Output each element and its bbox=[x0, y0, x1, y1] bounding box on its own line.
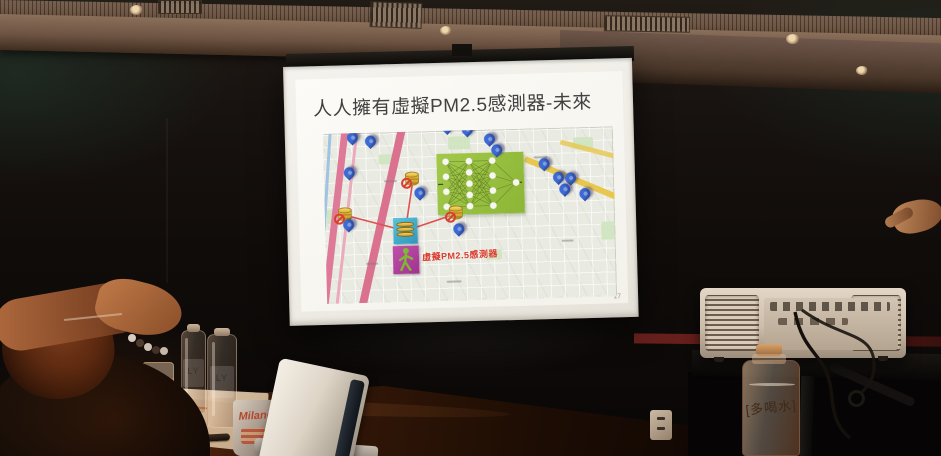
projection-screen: 人人擁有虛擬PM2.5感測器-未來 17 bbox=[283, 58, 639, 326]
bottle-label: LY bbox=[183, 359, 203, 387]
bottle-handwriting: [多喝水] bbox=[742, 394, 800, 419]
ceiling-vent bbox=[604, 15, 690, 32]
slide-title: 人人擁有虛擬PM2.5感測器-未來 bbox=[313, 86, 614, 121]
conference-room-photo: 人人擁有虛擬PM2.5感測器-未來 17 bbox=[0, 0, 941, 456]
water-bottle-front: [多喝水] bbox=[742, 360, 800, 456]
walking-person-icon bbox=[393, 246, 420, 275]
bracelet-bead bbox=[152, 346, 160, 354]
wall-outlet bbox=[650, 410, 672, 440]
pm25-sensor-map: 虛擬PM2.5感測器 bbox=[323, 126, 617, 304]
db-disc bbox=[396, 232, 414, 237]
bracelet-bead bbox=[144, 343, 152, 351]
bottle-neck bbox=[752, 354, 786, 364]
ceiling-light bbox=[856, 66, 868, 75]
no-sensor-icon bbox=[401, 178, 412, 189]
ceiling-light bbox=[130, 5, 143, 15]
ceiling-vent bbox=[370, 1, 423, 29]
bracelet-bead bbox=[160, 347, 168, 355]
bottle-cap bbox=[187, 324, 201, 332]
database-cylinder-icon bbox=[404, 171, 422, 187]
bracelet-bead bbox=[128, 334, 136, 342]
ceiling-light bbox=[440, 26, 452, 35]
outlet-slot bbox=[657, 417, 665, 420]
database-cylinder-icon bbox=[396, 222, 414, 240]
screen-mount-bracket bbox=[452, 44, 472, 56]
outlet-slot bbox=[657, 427, 665, 430]
projector-cables bbox=[690, 280, 941, 456]
bottle-cap bbox=[214, 328, 231, 336]
ceiling-light bbox=[786, 34, 800, 44]
sensor-link-lines bbox=[323, 126, 617, 304]
screen-glow bbox=[300, 320, 630, 380]
no-sensor-icon bbox=[445, 212, 456, 223]
water-line bbox=[749, 383, 795, 386]
bottle-label: LY bbox=[210, 366, 235, 397]
wall-panel-seam bbox=[166, 118, 168, 283]
ceiling-vent bbox=[158, 0, 202, 14]
presentation-slide: 人人擁有虛擬PM2.5感測器-未來 17 bbox=[295, 71, 628, 311]
virtual-sensor-hub-icon bbox=[393, 218, 418, 245]
walking-person-glyph bbox=[395, 247, 418, 274]
bracelet-bead bbox=[136, 339, 144, 347]
database-cylinder-icon bbox=[448, 205, 466, 221]
